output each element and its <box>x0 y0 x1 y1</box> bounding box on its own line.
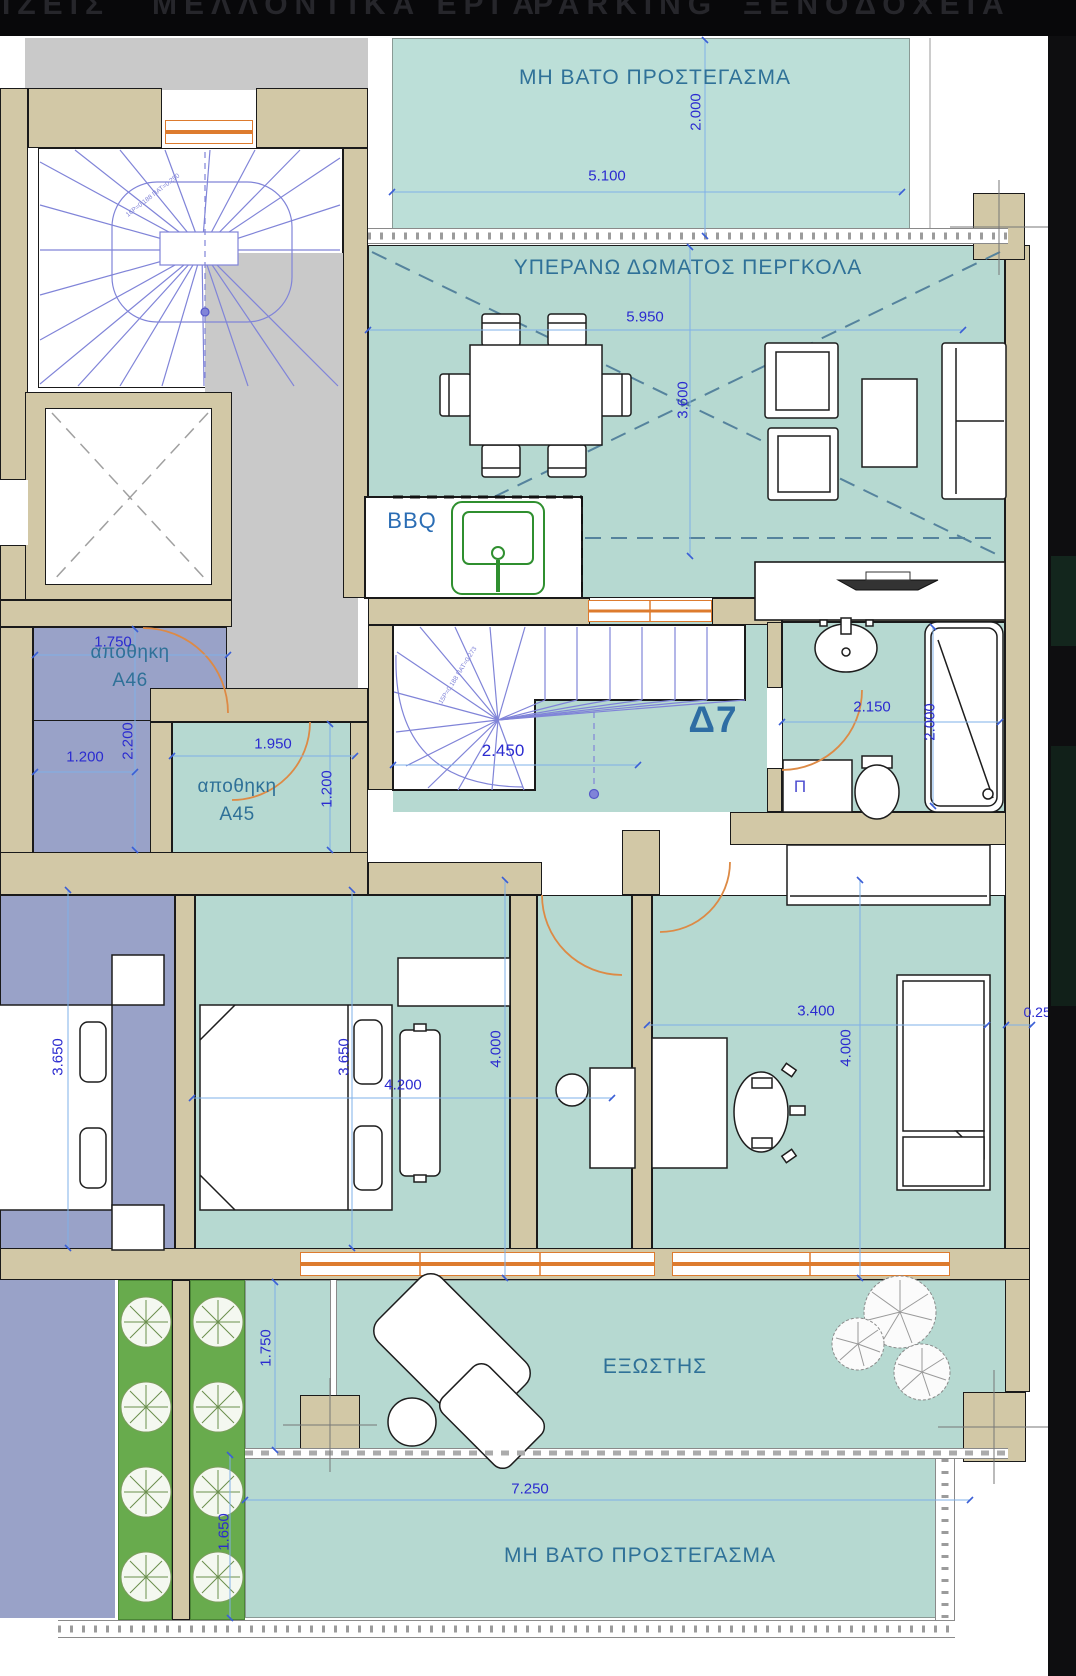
dim-canopy-height: 2.000 <box>688 93 705 131</box>
plant-icon <box>193 1552 243 1602</box>
dim-canopy-width: 5.100 <box>588 168 626 185</box>
plant-icon <box>193 1382 243 1432</box>
floor-plan-page: ΜΗ ΒΑΤΟ ΠΡΟΣΤΕΓΑΣΜΑ 2.000 5.100 ΥΠΕΡΑΝΩ … <box>0 0 1076 1676</box>
dim-stair-width: 2.450 <box>482 741 525 761</box>
plant-icon <box>121 1382 171 1432</box>
plant-icon <box>193 1467 243 1517</box>
dim-bedroom1-height: 3.650 <box>336 1038 353 1076</box>
balcony-label: ΕΞΩΣΤΗΣ <box>603 1355 707 1379</box>
toilet-icon <box>855 765 899 819</box>
dresser <box>400 1030 440 1176</box>
plant-icon <box>121 1467 171 1517</box>
pillow <box>354 1020 382 1084</box>
planter-plants <box>121 1297 243 1602</box>
nav-item-future-projects[interactable]: ΜΕΛΛΟΝΤΙΚΑ ΕΡΓΑ <box>152 0 541 22</box>
lounge-set <box>765 343 1006 500</box>
dim-balcony-depth: 1.750 <box>258 1329 275 1367</box>
right-cutoff-panel <box>1048 36 1076 1676</box>
dim-bath-height: 2.000 <box>922 703 939 741</box>
tree-icons <box>832 1276 950 1400</box>
plant-icon <box>121 1297 171 1347</box>
dim-canopy-bottom-width: 7.250 <box>511 1481 549 1498</box>
plant-icon <box>193 1297 243 1347</box>
right-panel-block <box>1051 556 1076 646</box>
dim-neighbor-bed-height: 3.650 <box>50 1038 67 1076</box>
washer-label: Π <box>794 777 806 797</box>
dim-a46-width: 1.200 <box>66 749 104 766</box>
main-staircase-treads <box>40 150 340 386</box>
pergola-label: ΥΠΕΡΑΝΩ ΔΩΜΑΤΟΣ ΠΕΡΓΚΟΛΑ <box>514 256 863 280</box>
dining-set <box>440 314 631 477</box>
nav-item-investments[interactable]: ΙΖΕΙΣ <box>2 0 110 22</box>
dim-canopy-bottom-height: 1.650 <box>216 1513 233 1551</box>
neighbor-bed <box>0 955 164 1250</box>
dim-a46-door: 1.750 <box>94 634 132 651</box>
storage-a45-code: Α45 <box>219 804 254 826</box>
bbq-label: BBQ <box>387 508 436 534</box>
dim-a45-width: 1.950 <box>254 736 292 753</box>
round-table-icon <box>388 1398 436 1446</box>
top-navigation-bar: ΙΖΕΙΣ ΜΕΛΛΟΝΤΙΚΑ ΕΡΓΑ PARKING ΞΕΝΟΔΟΧΕΙΑ <box>0 0 1076 36</box>
dim-a45-height: 1.200 <box>319 770 336 808</box>
pillow <box>354 1126 382 1190</box>
apartment-label: Δ7 <box>688 699 737 741</box>
balcony-sofa-set <box>367 1267 549 1473</box>
right-panel-block <box>1051 746 1076 1006</box>
plan-linework <box>0 0 1076 1676</box>
nav-item-parking[interactable]: PARKING <box>533 0 718 22</box>
dim-bath-width: 2.150 <box>853 699 891 716</box>
storage-a46-code: Α46 <box>112 670 147 692</box>
elevator-x-icon <box>52 413 208 582</box>
hallway-furniture <box>556 1068 635 1168</box>
dim-bedroom1-height2: 4.000 <box>488 1030 505 1068</box>
canopy-top-label: ΜΗ ΒΑΤΟ ΠΡΟΣΤΕΓΑΣΜΑ <box>519 66 791 90</box>
dim-a46-height: 2.200 <box>120 722 137 760</box>
shelf-counter <box>755 562 1005 620</box>
dim-bedroom2-width: 3.400 <box>797 1003 835 1020</box>
nav-item-hotels[interactable]: ΞΕΝΟΔΟΧΕΙΑ <box>743 0 1011 22</box>
dim-bedroom1-width: 4.200 <box>384 1077 422 1094</box>
dim-pergola-width: 5.950 <box>626 309 664 326</box>
bedroom1-furniture <box>200 958 510 1210</box>
shelf <box>398 958 510 1006</box>
dim-pergola-height: 3.600 <box>675 381 692 419</box>
plant-icon <box>121 1552 171 1602</box>
desk <box>652 1038 727 1168</box>
canopy-bottom-label: ΜΗ ΒΑΤΟ ΠΡΟΣΤΕΓΑΣΜΑ <box>504 1544 776 1568</box>
storage-a45-label: αποθηκη <box>197 776 276 798</box>
dim-bedroom2-height: 4.000 <box>838 1029 855 1067</box>
bathroom-fixtures <box>783 618 1003 819</box>
